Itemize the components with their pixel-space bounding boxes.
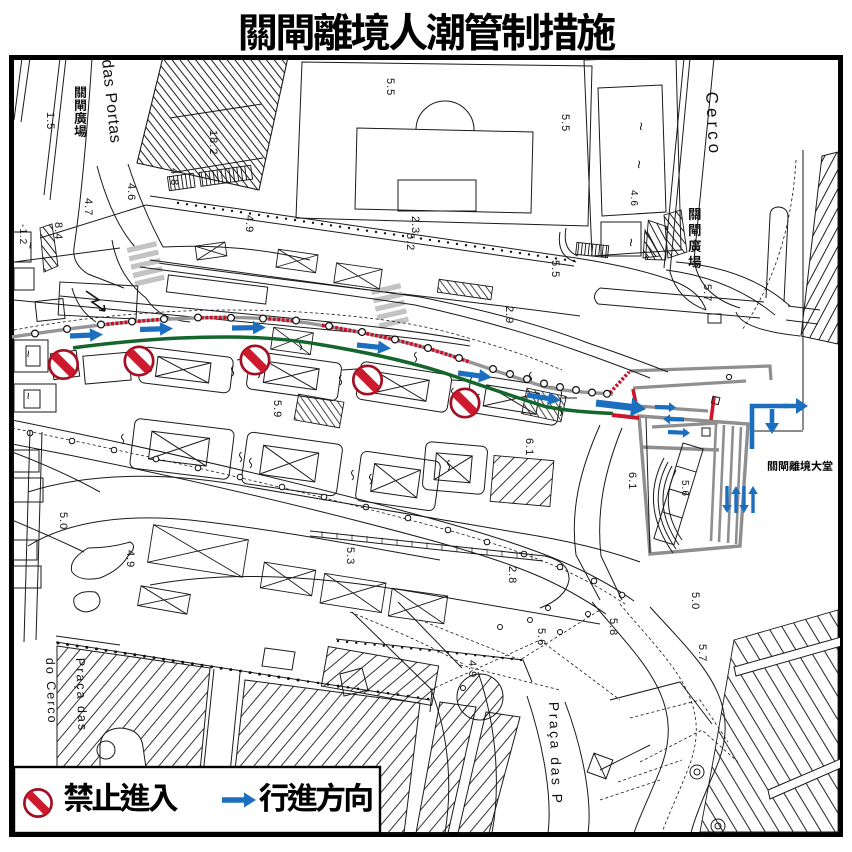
svg-text:2.9: 2.9 xyxy=(503,306,515,324)
svg-text:2.8: 2.8 xyxy=(506,566,518,584)
svg-text:4.9: 4.9 xyxy=(124,550,136,568)
svg-text:~: ~ xyxy=(21,392,36,400)
svg-text:4.7: 4.7 xyxy=(82,198,94,216)
svg-text:5.6: 5.6 xyxy=(679,480,690,497)
svg-text:5.7: 5.7 xyxy=(696,644,708,662)
svg-text:Praça das: Praça das xyxy=(73,658,90,733)
svg-text:5.6: 5.6 xyxy=(535,628,547,646)
svg-text:4.9: 4.9 xyxy=(243,215,255,233)
svg-text:~: ~ xyxy=(630,160,647,169)
svg-text:5.5: 5.5 xyxy=(559,114,571,132)
svg-text:5.5: 5.5 xyxy=(384,78,396,96)
svg-text:5.0: 5.0 xyxy=(57,512,69,530)
svg-text:4.6: 4.6 xyxy=(628,190,639,207)
svg-text:6.1: 6.1 xyxy=(523,438,535,456)
svg-text:~: ~ xyxy=(632,122,649,131)
svg-text:5.0: 5.0 xyxy=(689,592,701,610)
svg-text:~: ~ xyxy=(21,350,36,358)
svg-text:4.9: 4.9 xyxy=(466,660,478,678)
svg-text:do Cerco: do Cerco xyxy=(43,658,59,725)
svg-text:5.2: 5.2 xyxy=(404,233,416,251)
svg-text:4.6: 4.6 xyxy=(125,183,137,201)
svg-text:5.3: 5.3 xyxy=(344,547,356,565)
svg-text:Cerco: Cerco xyxy=(702,91,724,157)
svg-text:6.1: 6.1 xyxy=(626,472,638,490)
svg-text:5.5: 5.5 xyxy=(549,260,561,278)
svg-text:~: ~ xyxy=(23,242,37,249)
svg-text:5.9: 5.9 xyxy=(271,400,283,418)
svg-text:2.3: 2.3 xyxy=(409,216,421,234)
svg-text:~: ~ xyxy=(622,238,639,247)
svg-text:1.5: 1.5 xyxy=(44,112,56,130)
svg-text:5.7: 5.7 xyxy=(701,284,713,302)
